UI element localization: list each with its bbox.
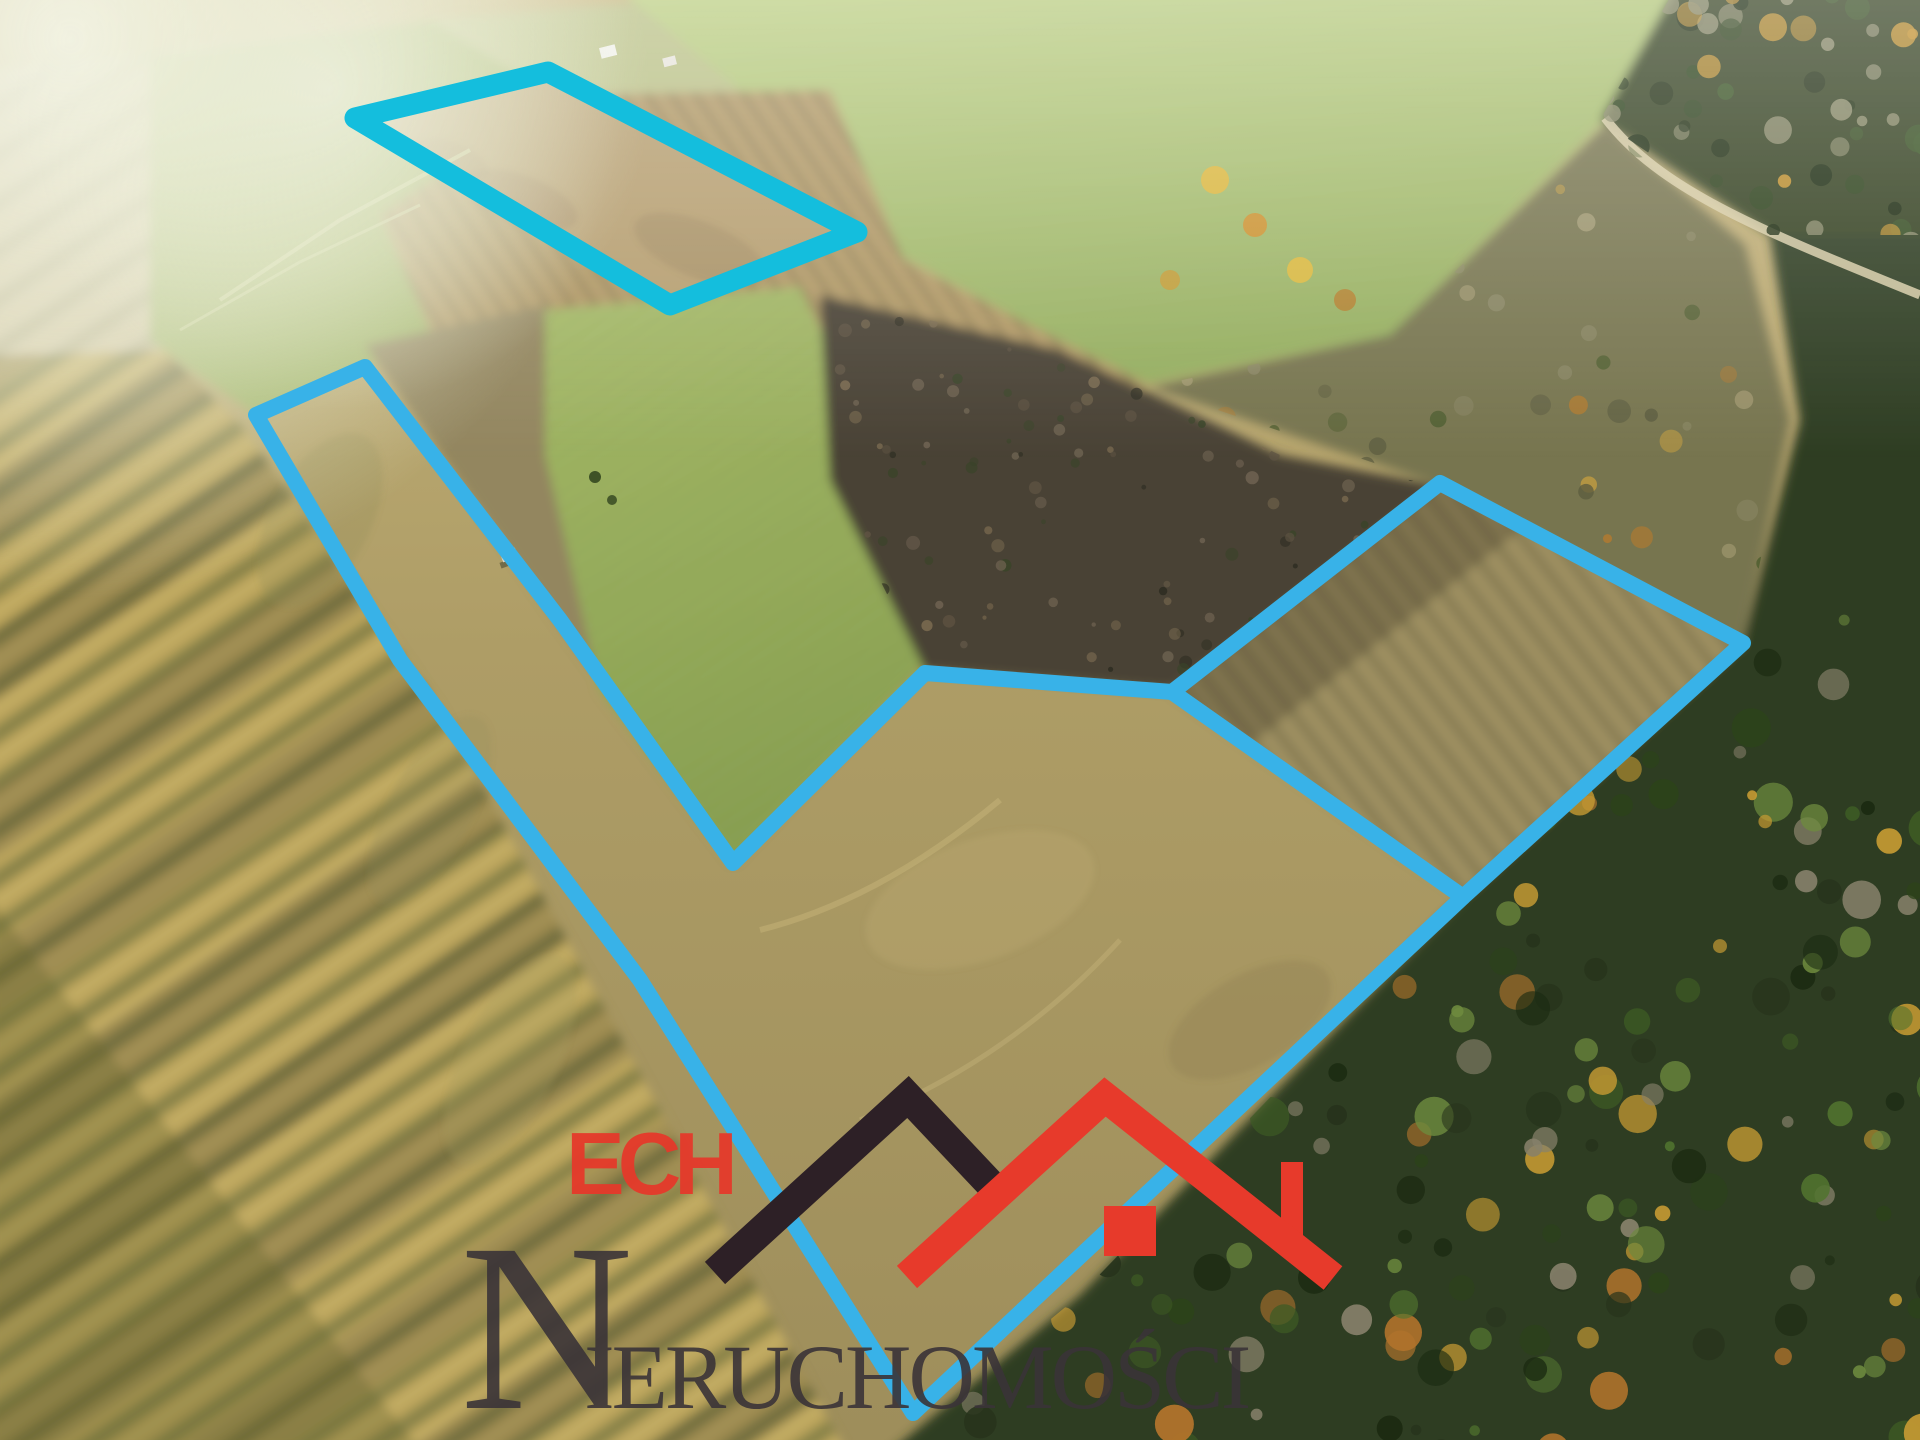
chimney-square-icon — [1104, 1206, 1156, 1256]
aerial-photo: ECH N IERUCHOMOŚCI — [0, 0, 1920, 1440]
aerial-photo-canvas: ECH N IERUCHOMOŚCI — [0, 0, 1920, 1440]
brand-rest: IERUCHOMOŚCI — [584, 1326, 1249, 1428]
